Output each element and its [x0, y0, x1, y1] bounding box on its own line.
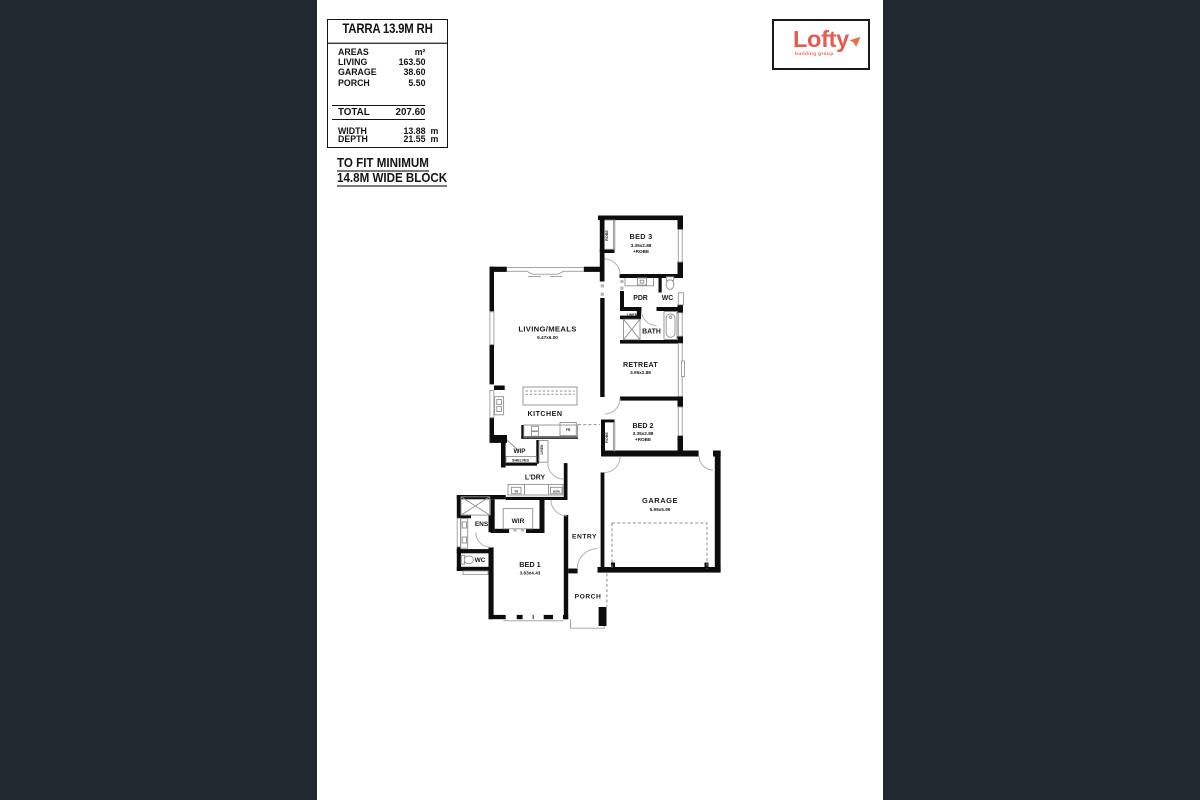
- svg-text:KITCHEN: KITCHEN: [527, 410, 562, 418]
- svg-text:LINEN: LINEN: [627, 313, 638, 317]
- svg-text:WC: WC: [475, 557, 486, 564]
- svg-text:3.35x2.88: 3.35x2.88: [631, 243, 652, 248]
- svg-text:GARAGE: GARAGE: [642, 496, 678, 505]
- svg-text:ROBE: ROBE: [605, 432, 609, 443]
- svg-text:PORCH: PORCH: [575, 594, 602, 601]
- svg-text:WC: WC: [662, 295, 674, 302]
- svg-text:BED 2: BED 2: [633, 422, 654, 430]
- svg-text:+ROBE: +ROBE: [633, 249, 649, 254]
- svg-text:5.47x6.00: 5.47x6.00: [537, 335, 558, 340]
- svg-text:ENTRY: ENTRY: [572, 533, 597, 540]
- svg-text:WIR: WIR: [512, 518, 525, 525]
- svg-text:BSM: BSM: [553, 489, 560, 493]
- svg-text:LINEN: LINEN: [540, 444, 544, 455]
- svg-text:+ROBE: +ROBE: [635, 437, 651, 442]
- svg-text:ENS: ENS: [475, 521, 489, 528]
- svg-text:LIVING/MEALS: LIVING/MEALS: [518, 325, 576, 334]
- svg-text:SHELVES: SHELVES: [512, 458, 529, 462]
- svg-text:5.99x5.99: 5.99x5.99: [650, 507, 671, 512]
- svg-text:3.95x2.88: 3.95x2.88: [630, 370, 651, 375]
- svg-text:3.83x4.43: 3.83x4.43: [520, 570, 541, 575]
- svg-text:L'DRY: L'DRY: [525, 474, 546, 481]
- svg-text:BATH: BATH: [642, 328, 661, 335]
- svg-text:WIP: WIP: [514, 448, 526, 455]
- svg-text:BED 3: BED 3: [630, 232, 653, 241]
- svg-text:ROBE: ROBE: [605, 230, 609, 241]
- svg-text:BED 1: BED 1: [519, 560, 541, 569]
- svg-text:3.35x2.88: 3.35x2.88: [633, 431, 654, 436]
- svg-text:TR: TR: [514, 489, 519, 493]
- svg-text:PDR: PDR: [633, 295, 648, 302]
- svg-text:FR: FR: [566, 428, 571, 432]
- svg-text:RETREAT: RETREAT: [623, 361, 658, 369]
